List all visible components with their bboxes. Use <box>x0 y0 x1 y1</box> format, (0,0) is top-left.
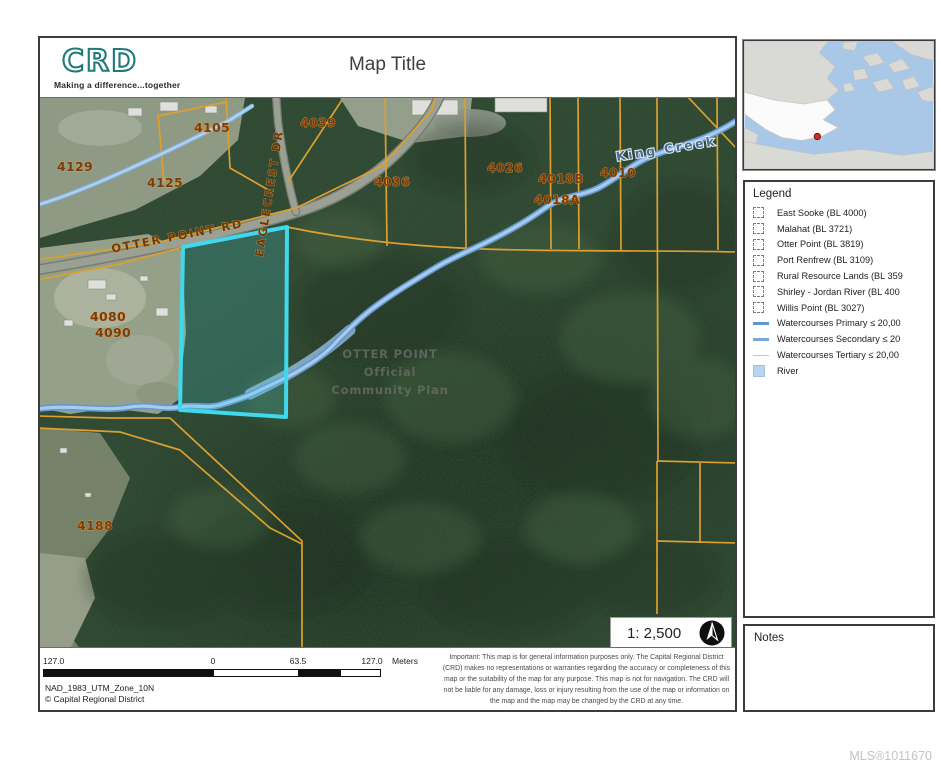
legend-label: Otter Point (BL 3819) <box>777 239 863 249</box>
community-plan-label: Official <box>364 365 417 379</box>
legend-row: Watercourses Secondary ≤ 20 <box>753 331 925 347</box>
parcel-number-label: 4129 <box>57 159 93 174</box>
legend-swatch-dashed <box>753 271 764 282</box>
legend-swatch-line-secondary <box>753 338 769 341</box>
legend-label: River <box>777 366 798 376</box>
legend-row: Malahat (BL 3721) <box>753 221 925 237</box>
parcel-number-label: 4090 <box>95 325 131 340</box>
legend-swatch-dashed <box>753 302 764 313</box>
projection-label: NAD_1983_UTM_Zone_10N <box>45 683 154 693</box>
logo-tagline: Making a difference...together <box>54 80 244 90</box>
map-document-frame: CRD Making a difference...together Map T… <box>38 36 737 712</box>
legend-swatch-dashed <box>753 239 764 250</box>
mls-watermark: MLS®1011670 <box>849 749 932 763</box>
legend-row: Willis Point (BL 3027) <box>753 300 925 316</box>
scale-ratio: 1: 2,500 <box>611 625 698 642</box>
legend-row: Port Renfrew (BL 3109) <box>753 252 925 268</box>
copyright-label: © Capital Regional District <box>45 694 144 704</box>
footer-strip: 127.0 0 63.5 127.0 Meters NAD_1983_UTM_Z… <box>40 648 735 708</box>
scalebar <box>43 669 381 677</box>
parcel-number-label: 4080 <box>90 309 126 324</box>
notes-title: Notes <box>754 632 924 644</box>
legend-row: Otter Point (BL 3819) <box>753 237 925 253</box>
legend-label: Malahat (BL 3721) <box>777 224 852 234</box>
legend-label: Watercourses Primary ≤ 20,00 <box>777 318 901 328</box>
legend-swatch-dashed <box>753 223 764 234</box>
legend-row: Shirley - Jordan River (BL 400 <box>753 284 925 300</box>
parcel-number-label: 4039 <box>300 115 336 130</box>
legend-label: East Sooke (BL 4000) <box>777 208 867 218</box>
disclaimer-text: Important: This map is for general infor… <box>440 652 733 707</box>
legend-row: East Sooke (BL 4000) <box>753 205 925 221</box>
legend-panel: Legend East Sooke (BL 4000)Malahat (BL 3… <box>743 180 935 618</box>
scalebar-label: 127.0 <box>43 656 64 666</box>
highlighted-parcel <box>180 227 287 417</box>
legend-rows: East Sooke (BL 4000)Malahat (BL 3721)Ott… <box>753 205 925 379</box>
community-plan-label: OTTER POINT <box>342 347 437 361</box>
notes-panel: Notes <box>743 624 935 712</box>
legend-label: Watercourses Tertiary ≤ 20,00 <box>777 350 899 360</box>
legend-title: Legend <box>753 188 925 200</box>
parcel-number-label: 4188 <box>77 518 113 533</box>
legend-label: Rural Resource Lands (BL 359 <box>777 271 903 281</box>
parcel-number-label: 4105 <box>194 120 230 135</box>
legend-swatch-river <box>753 365 765 377</box>
community-plan-label: Community Plan <box>331 383 448 397</box>
parcel-number-label: 4018A <box>534 192 580 207</box>
parcel-number-label: 4036 <box>374 174 410 189</box>
legend-row: Rural Resource Lands (BL 359 <box>753 268 925 284</box>
map-area: 4129410541254039403640264018B4018A401040… <box>40 97 735 648</box>
parcel-number-label: 4125 <box>147 175 183 190</box>
legend-label: Watercourses Secondary ≤ 20 <box>777 334 900 344</box>
legend-row: Watercourses Primary ≤ 20,00 <box>753 316 925 332</box>
scalebar-label: 63.5 <box>285 656 311 666</box>
scalebar-label: 0 <box>203 656 223 666</box>
legend-swatch-line-tertiary <box>753 355 769 356</box>
parcel-number-label: 4010 <box>600 165 636 180</box>
scalebar-label: 127.0 <box>357 656 387 666</box>
scale-box: 1: 2,500 <box>610 617 732 648</box>
scalebar-unit: Meters <box>392 656 418 666</box>
location-marker <box>814 133 820 139</box>
map-title: Map Title <box>40 54 735 76</box>
locator-map <box>744 41 934 169</box>
locator-inset-map <box>743 40 935 170</box>
legend-swatch-dashed <box>753 207 764 218</box>
header: CRD Making a difference...together Map T… <box>40 38 735 97</box>
north-arrow-icon <box>698 619 726 647</box>
legend-row: Watercourses Tertiary ≤ 20,00 <box>753 347 925 363</box>
legend-label: Shirley - Jordan River (BL 400 <box>777 287 900 297</box>
parcel-number-label: 4018B <box>538 171 584 186</box>
page: CRD Making a difference...together Map T… <box>0 0 941 768</box>
legend-swatch-line-primary <box>753 322 769 325</box>
legend-label: Port Renfrew (BL 3109) <box>777 255 873 265</box>
legend-row: River <box>753 363 925 379</box>
aerial-map: 4129410541254039403640264018B4018A401040… <box>40 98 735 648</box>
parcel-number-label: 4026 <box>487 160 523 175</box>
legend-swatch-dashed <box>753 255 764 266</box>
legend-swatch-dashed <box>753 286 764 297</box>
legend-label: Willis Point (BL 3027) <box>777 303 864 313</box>
